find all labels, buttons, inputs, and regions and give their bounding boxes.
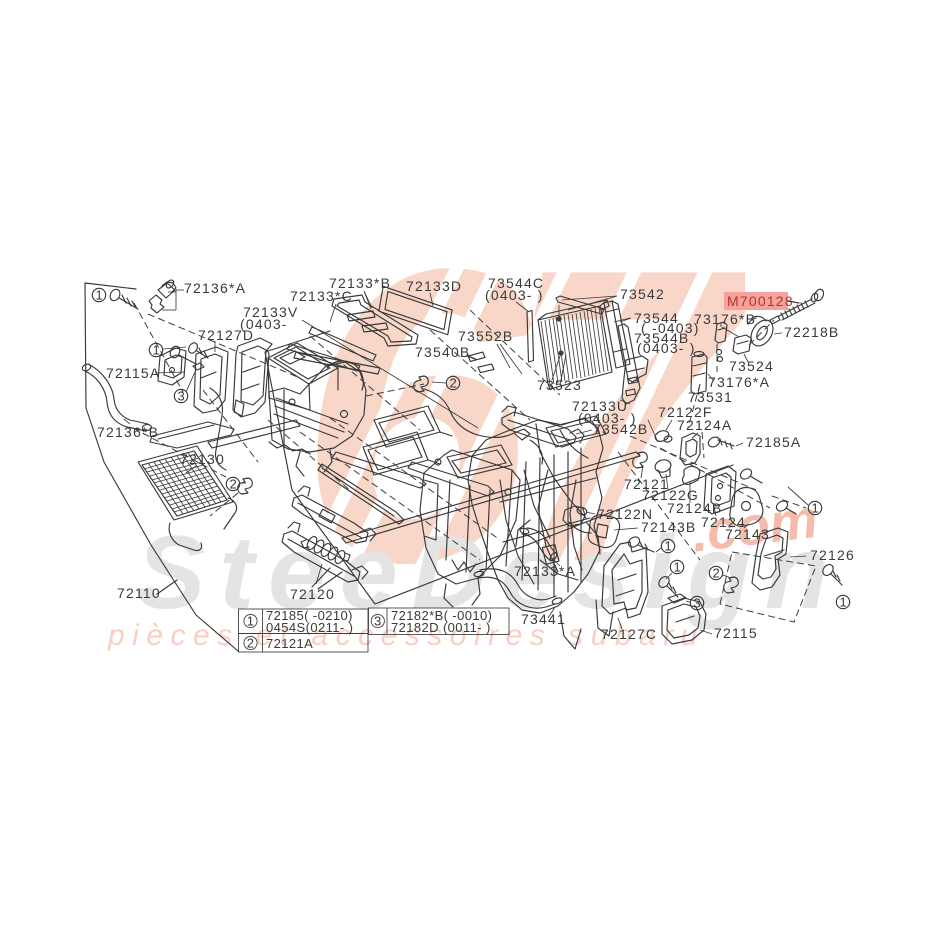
svg-text:73552B: 73552B — [458, 328, 513, 344]
svg-text:1: 1 — [247, 614, 255, 629]
svg-text:72124A: 72124A — [677, 417, 732, 433]
svg-text:1: 1 — [96, 288, 104, 303]
svg-text:72143B: 72143B — [641, 519, 696, 535]
svg-text:3: 3 — [374, 614, 382, 629]
svg-text:(0403- ): (0403- ) — [485, 287, 544, 303]
svg-text:73524: 73524 — [729, 358, 774, 374]
svg-text:1: 1 — [674, 560, 682, 575]
svg-text:1: 1 — [665, 539, 673, 554]
svg-text:72130: 72130 — [180, 451, 225, 467]
svg-text:73441: 73441 — [521, 611, 566, 627]
svg-text:0454S(0211- ): 0454S(0211- ) — [266, 620, 353, 635]
svg-text:1: 1 — [812, 501, 820, 516]
svg-text:73523: 73523 — [537, 377, 582, 393]
svg-text:M700128: M700128 — [727, 293, 794, 309]
svg-text:72120: 72120 — [290, 586, 335, 602]
svg-text:72110: 72110 — [117, 585, 161, 601]
svg-text:72133*A: 72133*A — [514, 563, 576, 579]
svg-text:1: 1 — [840, 595, 848, 610]
svg-text:72127D: 72127D — [198, 327, 254, 343]
svg-text:73540B: 73540B — [415, 344, 470, 360]
svg-text:73176*A: 73176*A — [708, 374, 770, 390]
svg-text:72182D (0011- ): 72182D (0011- ) — [391, 620, 491, 635]
svg-text:72136*A: 72136*A — [184, 280, 246, 296]
svg-text:73531: 73531 — [688, 389, 733, 405]
svg-text:2: 2 — [713, 566, 721, 581]
svg-text:73176*B: 73176*B — [694, 311, 756, 327]
svg-text:72115A: 72115A — [106, 365, 160, 381]
svg-text:3: 3 — [178, 389, 186, 404]
svg-text:72121A: 72121A — [266, 636, 313, 651]
svg-text:72133D: 72133D — [406, 278, 462, 294]
svg-text:72143: 72143 — [725, 526, 770, 542]
svg-text:1: 1 — [153, 343, 161, 358]
svg-text:72133*C: 72133*C — [290, 288, 353, 304]
svg-text:72185A: 72185A — [746, 434, 801, 450]
svg-text:2: 2 — [247, 636, 255, 651]
svg-text:73542B: 73542B — [593, 421, 648, 437]
svg-text:2: 2 — [450, 376, 458, 391]
svg-text:72136*B: 72136*B — [97, 424, 159, 440]
svg-text:72218B: 72218B — [784, 324, 839, 340]
svg-text:72126: 72126 — [810, 547, 855, 563]
svg-text:72127C: 72127C — [601, 626, 657, 642]
svg-text:2: 2 — [230, 477, 238, 492]
svg-text:73542: 73542 — [620, 286, 665, 302]
svg-text:72115: 72115 — [714, 625, 758, 641]
svg-text:(0403- ): (0403- ) — [637, 340, 696, 356]
